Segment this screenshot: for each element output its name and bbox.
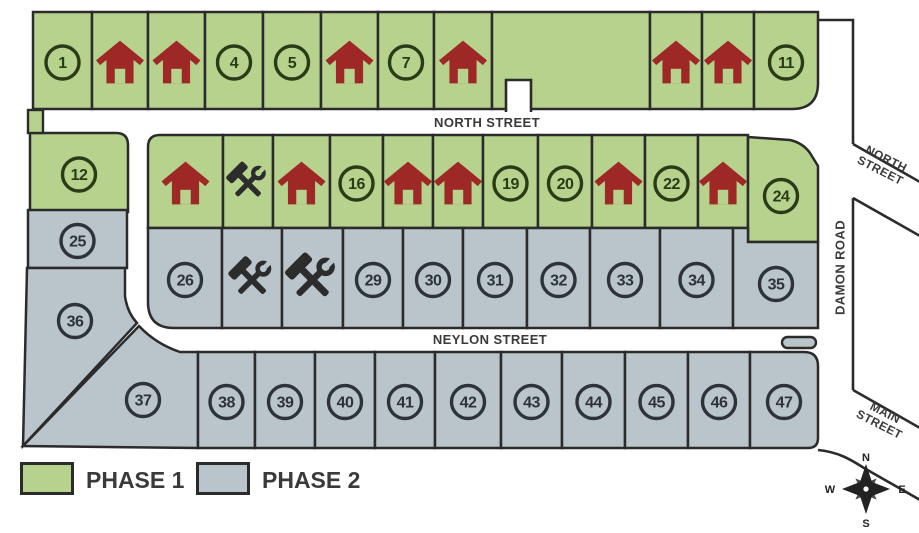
compass-rose: N E S W [0,0,919,533]
damon-road-label: DAMON ROAD [833,198,848,338]
legend-phase2-swatch [196,462,250,495]
compass-n-label: N [862,452,870,464]
legend-phase2-label: PHASE 2 [262,467,360,494]
neylon-street-label: NEYLON STREET [410,332,570,347]
site-plan: 1457111216192022242526293031323334353637… [0,0,919,533]
compass-center [863,486,870,493]
north-street-label: NORTH STREET [407,115,567,130]
compass-e-label: E [898,484,905,496]
compass-w-label: W [825,484,836,496]
legend-phase1-swatch [20,462,74,495]
legend-phase1-label: PHASE 1 [86,467,184,494]
compass-s-label: S [862,518,869,530]
